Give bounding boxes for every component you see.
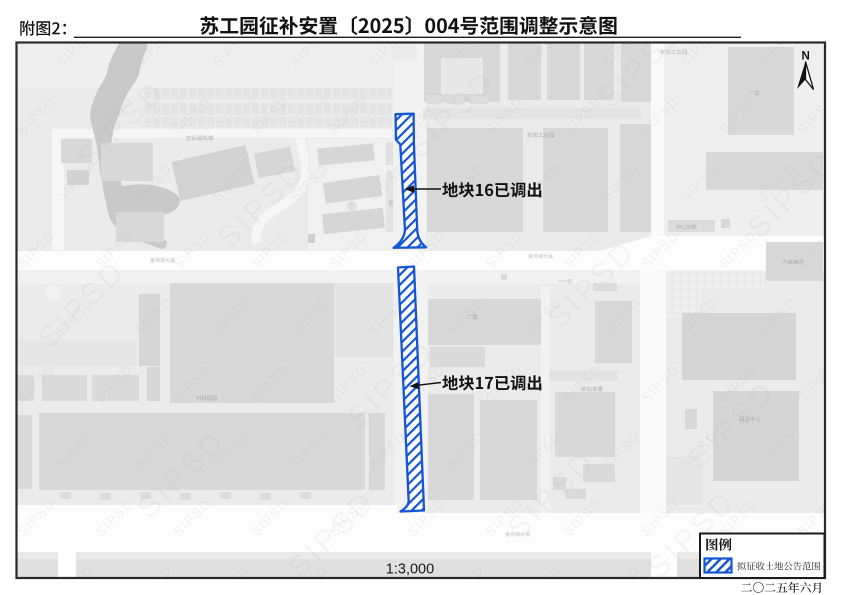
svg-text:1:3,000: 1:3,000 bbox=[386, 562, 434, 578]
svg-text:N: N bbox=[802, 51, 810, 63]
